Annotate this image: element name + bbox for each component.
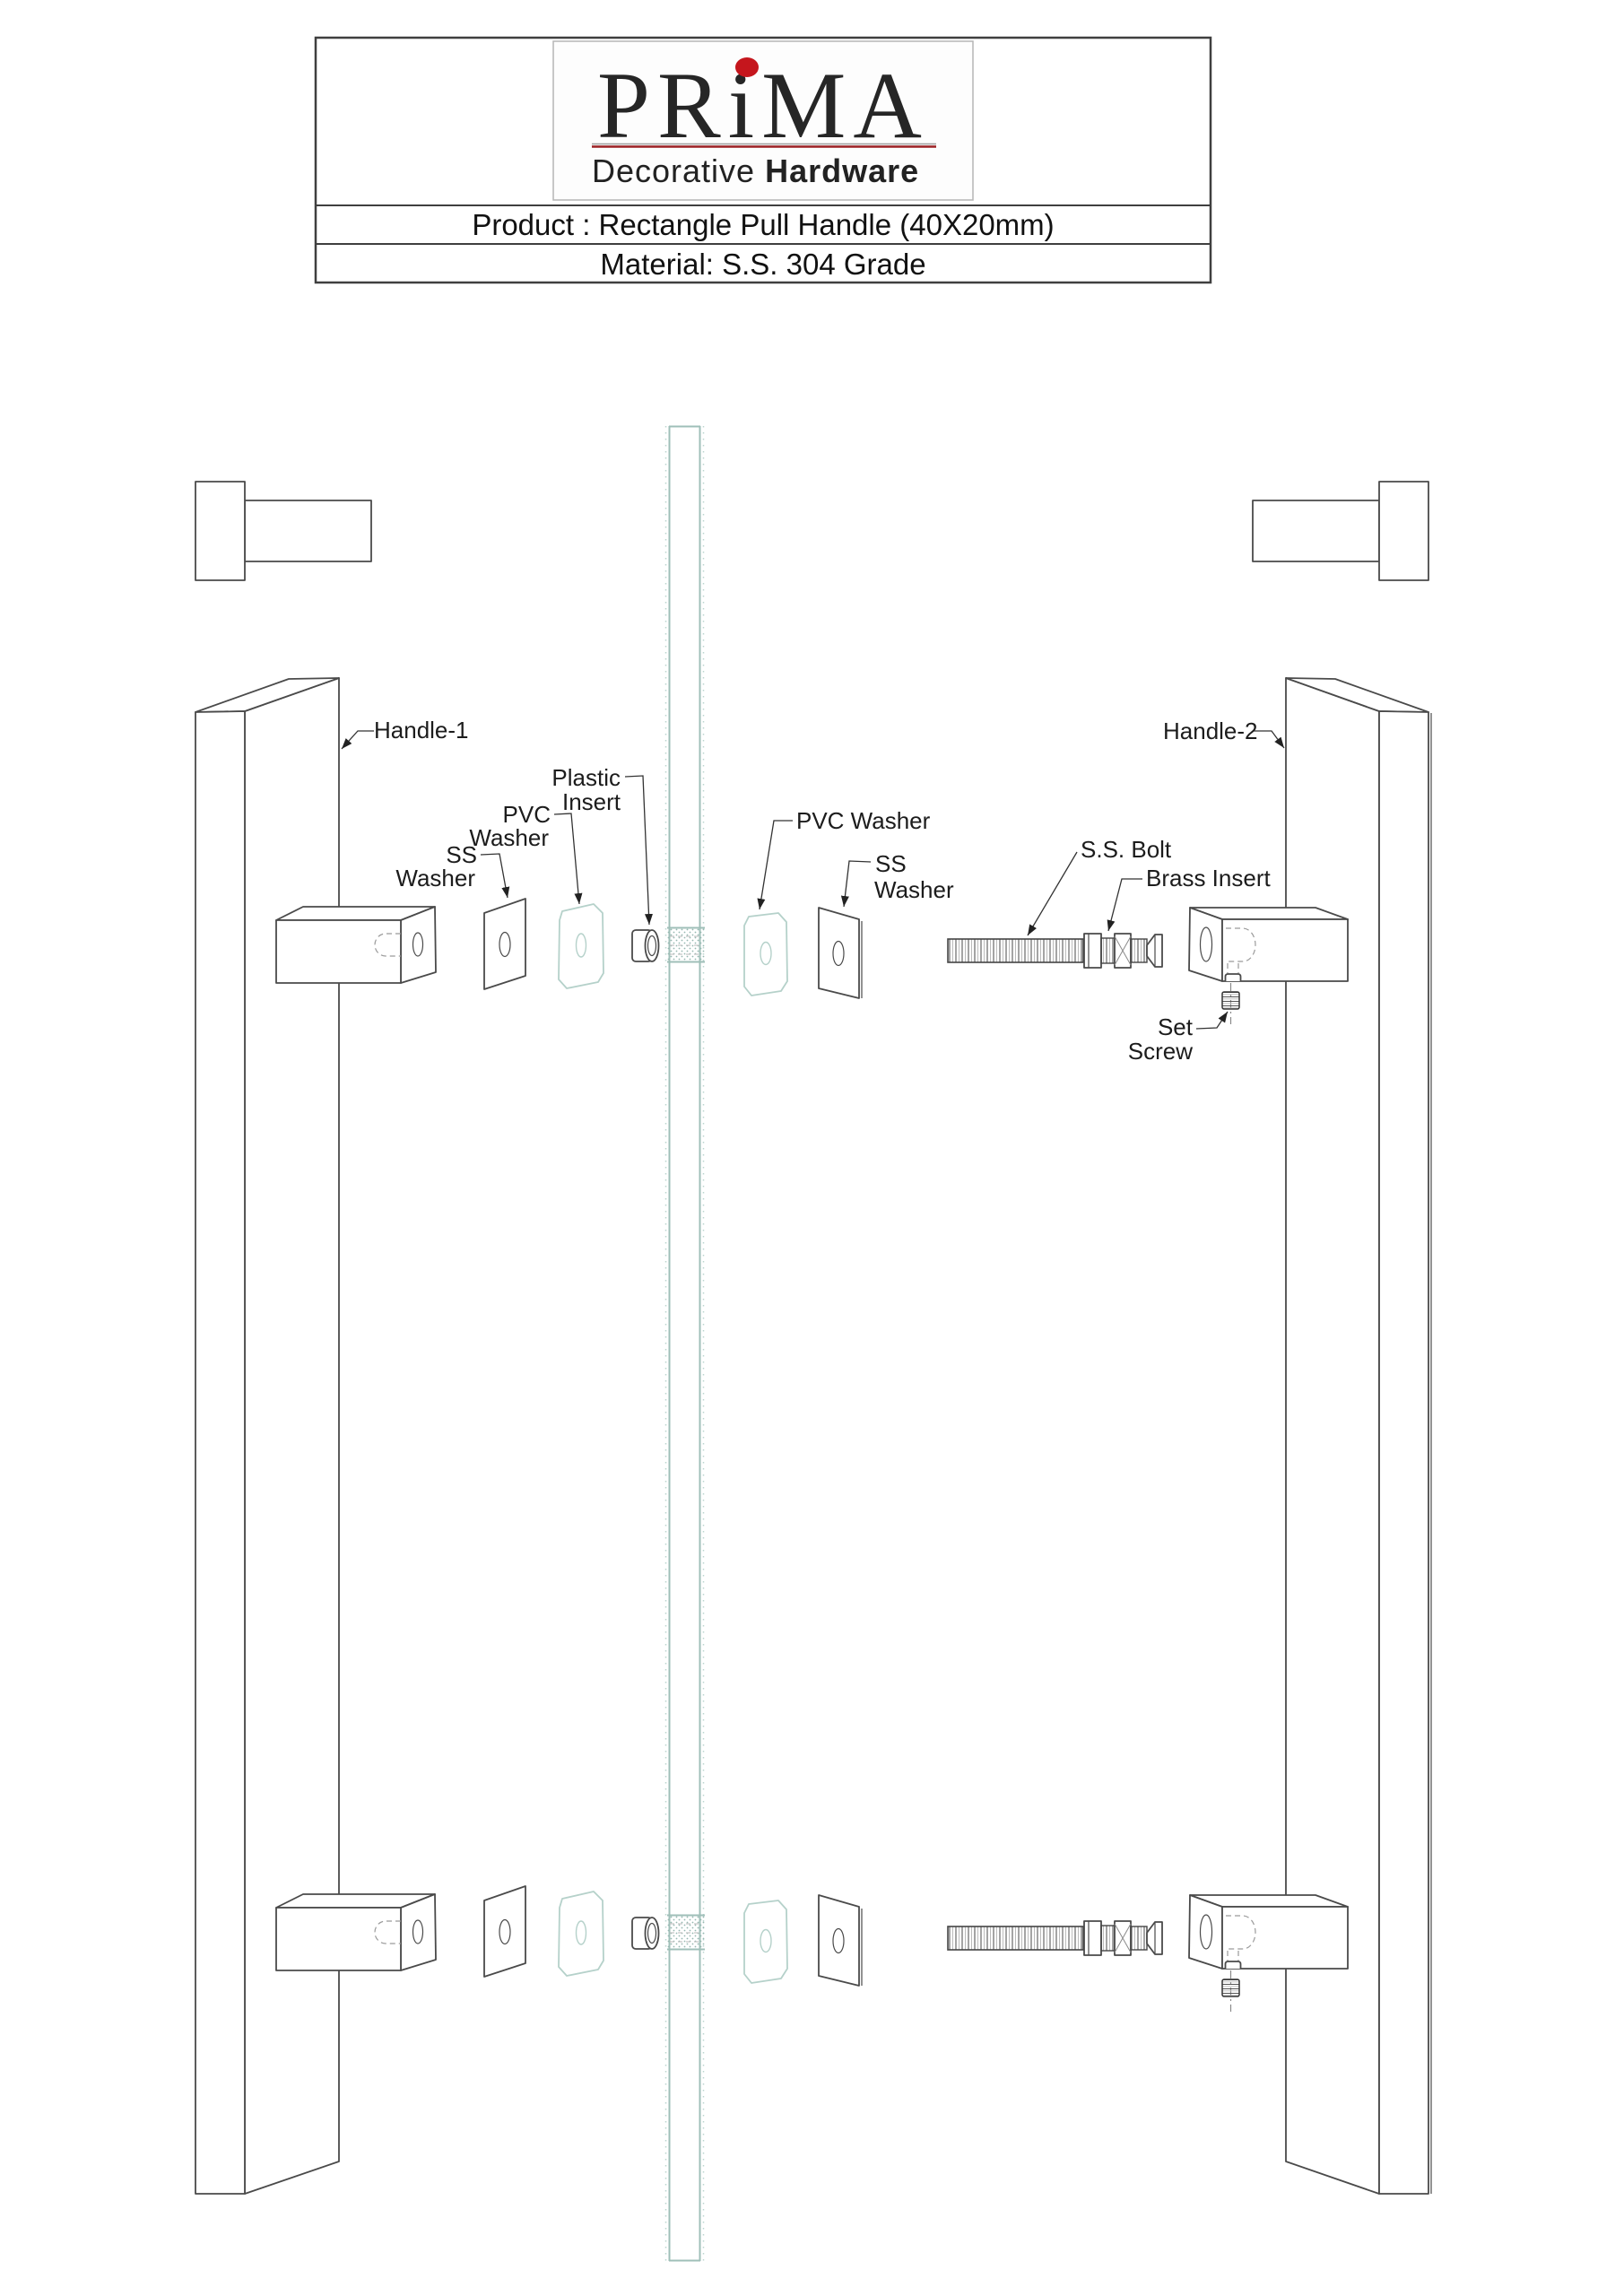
label-ss-washer-left-2: Washer xyxy=(395,865,475,891)
callout-labels: Handle-1 Plastic Insert PVC Washer SS Wa… xyxy=(342,717,1284,1065)
leader-plastic-insert xyxy=(625,776,649,925)
leader-pvc-washer-right xyxy=(760,821,793,909)
lower-fixing-assembly xyxy=(276,1886,1348,2012)
label-plastic-insert-1: Plastic xyxy=(551,764,621,791)
leader-ss-bolt xyxy=(1028,852,1077,935)
leader-handle-2 xyxy=(1254,731,1284,748)
product-row: Product : Rectangle Pull Handle (40X20mm… xyxy=(472,208,1054,241)
leader-handle-1 xyxy=(342,731,374,749)
leader-set-screw xyxy=(1196,1012,1228,1029)
logo-tagline: Decorative Hardware xyxy=(592,152,919,189)
leader-ss-washer-left xyxy=(481,854,508,898)
leader-pvc-washer-left xyxy=(554,813,579,904)
title-block: PRiMA Decorative Hardware Product : Rect… xyxy=(316,38,1211,283)
leader-brass-insert xyxy=(1108,879,1142,931)
label-ss-bolt: S.S. Bolt xyxy=(1081,836,1172,863)
logo-red-dot xyxy=(735,57,759,77)
plan-view-handle-2 xyxy=(1253,482,1428,580)
handle-1-front-face xyxy=(195,711,245,2194)
prima-logo: PRiMA Decorative Hardware xyxy=(592,53,936,189)
handle-2-front-face xyxy=(1379,711,1428,2194)
logo-brand-text: PRiMA xyxy=(597,53,929,158)
material-row: Material: S.S. 304 Grade xyxy=(600,248,925,281)
drawing-sheet: PRiMA Decorative Hardware Product : Rect… xyxy=(0,0,1615,2296)
label-set-screw-2: Screw xyxy=(1128,1038,1193,1065)
label-ss-washer-right-1: SS xyxy=(875,850,907,877)
label-plastic-insert-2: Insert xyxy=(562,788,621,815)
label-brass-insert: Brass Insert xyxy=(1146,865,1271,891)
leader-ss-washer-right xyxy=(844,861,871,907)
glass-panel xyxy=(666,426,704,2261)
assembly-drawing: PRiMA Decorative Hardware Product : Rect… xyxy=(0,0,1615,2296)
label-handle-2: Handle-2 xyxy=(1163,717,1258,744)
label-pvc-washer-right: PVC Washer xyxy=(796,807,931,834)
label-handle-1: Handle-1 xyxy=(374,717,469,744)
label-pvc-washer-left-2: Washer xyxy=(469,824,549,851)
label-set-screw-1: Set xyxy=(1158,1013,1194,1040)
upper-fixing-assembly xyxy=(276,899,1348,1024)
plan-view-handle-1 xyxy=(195,482,371,580)
label-ss-washer-right-2: Washer xyxy=(874,876,954,903)
